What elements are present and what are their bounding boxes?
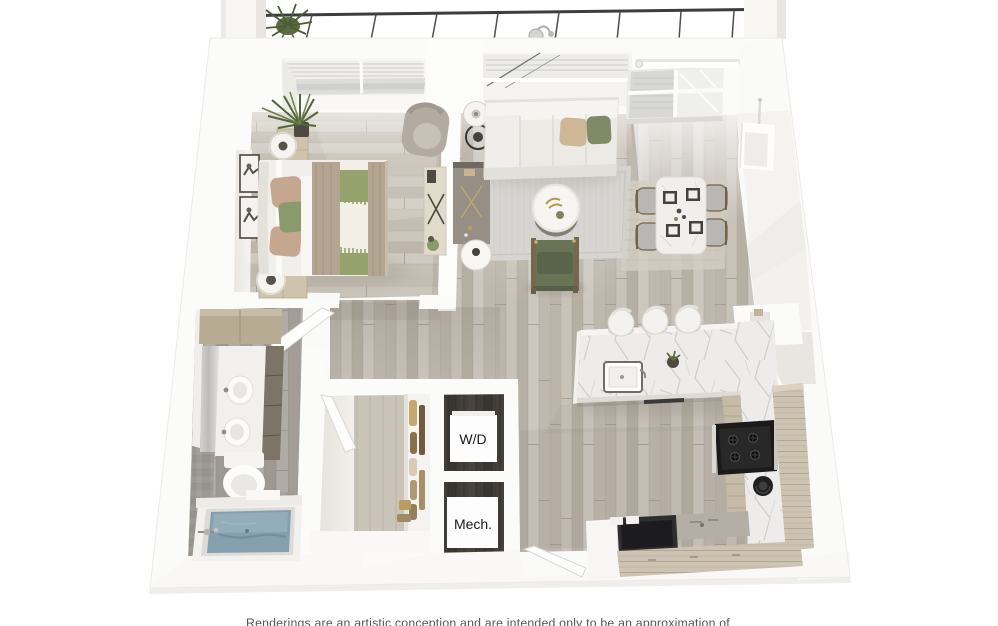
svg-text:W/D: W/D (459, 431, 486, 447)
svg-text:Mech.: Mech. (454, 516, 492, 532)
